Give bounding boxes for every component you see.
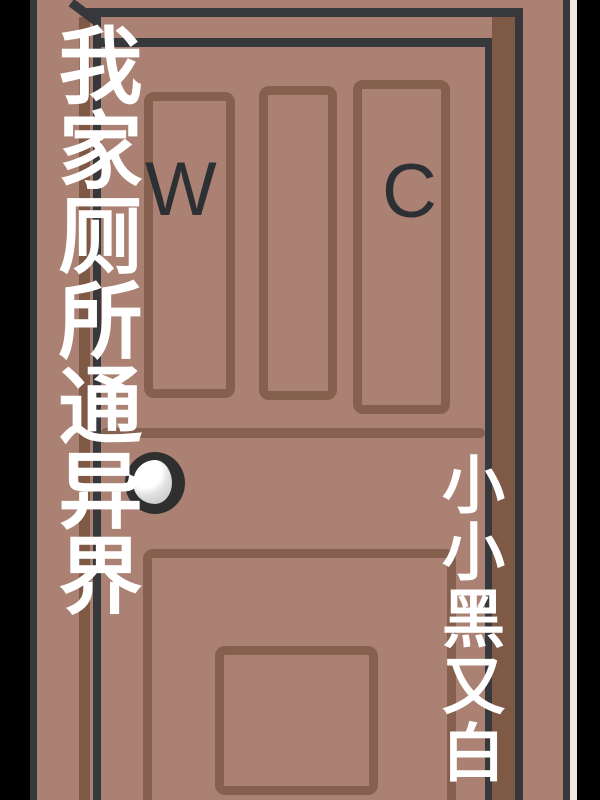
frame-outer-right-line — [515, 8, 523, 800]
frame-outer-top-line — [85, 8, 523, 17]
door-panel-right — [353, 80, 450, 414]
frame-edge-right-line — [563, 0, 570, 800]
paper-edge-highlight — [570, 0, 577, 800]
frame-inner-top-line — [96, 38, 492, 47]
door-panel-middle — [259, 86, 337, 400]
cover-title: 我家厕所通异界 — [52, 22, 136, 800]
door-letter-c: C — [382, 154, 437, 230]
cover-author: 小小黑又白 — [436, 452, 499, 800]
door-panel-left — [144, 92, 235, 398]
door-letter-w: W — [145, 152, 217, 228]
book-cover: W C 我家厕所通异界 小小黑又白 — [0, 0, 600, 800]
door-panel-bottom-inner — [215, 646, 378, 795]
door-mid-groove — [101, 428, 485, 438]
frame-outer-left-line — [30, 0, 37, 800]
